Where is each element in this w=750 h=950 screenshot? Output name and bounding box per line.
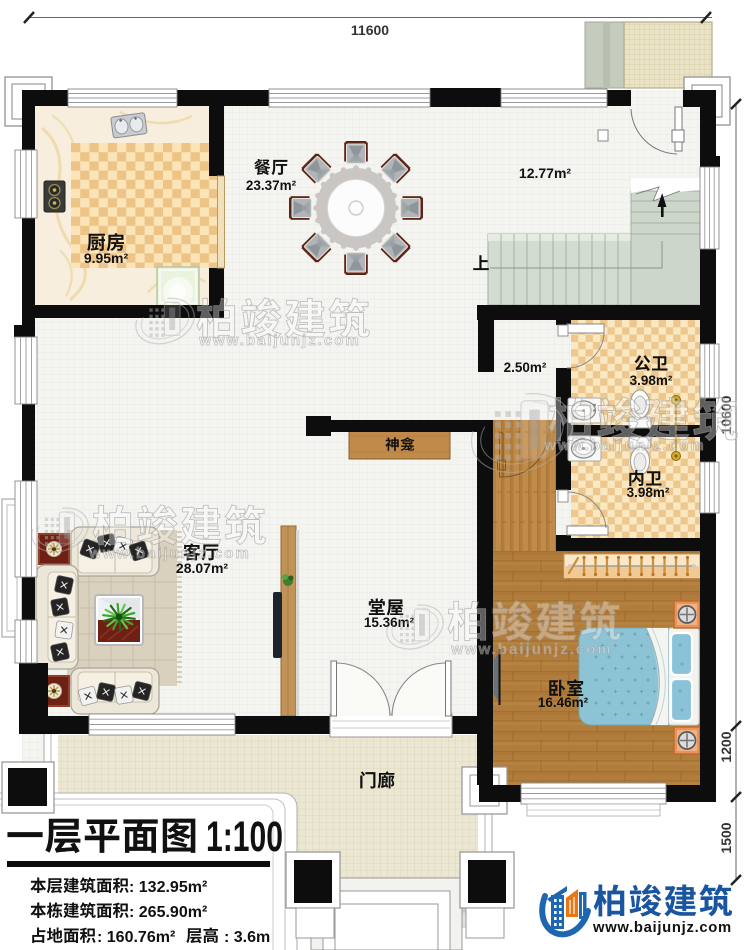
svg-text:: 160.76m²: : 160.76m² — [97, 929, 175, 946]
svg-text:www.baijunjz.com: www.baijunjz.com — [88, 545, 250, 562]
svg-text:3.98m²: 3.98m² — [630, 373, 673, 388]
svg-text:12.77m²: 12.77m² — [519, 165, 571, 181]
svg-text:1500: 1500 — [718, 822, 734, 853]
svg-text:9.95m²: 9.95m² — [84, 250, 129, 266]
svg-text:www.baijunjz.com: www.baijunjz.com — [543, 437, 705, 454]
svg-text:28.07m²: 28.07m² — [176, 560, 228, 576]
svg-text:www.baijunjz.com: www.baijunjz.com — [592, 920, 732, 936]
svg-text:11600: 11600 — [351, 22, 389, 38]
svg-text:1:100: 1:100 — [206, 812, 283, 861]
svg-text:: 132.95m²: : 132.95m² — [129, 879, 207, 896]
svg-text:: 265.90m²: : 265.90m² — [129, 904, 207, 921]
svg-text:3.98m²: 3.98m² — [627, 485, 670, 500]
svg-text:23.37m²: 23.37m² — [246, 178, 297, 193]
svg-text:: 3.6m: : 3.6m — [224, 929, 270, 946]
svg-text:1200: 1200 — [718, 731, 734, 762]
svg-text:www.baijunjz.com: www.baijunjz.com — [198, 332, 360, 349]
svg-text:www.baijunjz.com: www.baijunjz.com — [450, 641, 612, 658]
svg-text:2.50m²: 2.50m² — [504, 360, 547, 375]
svg-text:16.46m²: 16.46m² — [538, 695, 589, 710]
